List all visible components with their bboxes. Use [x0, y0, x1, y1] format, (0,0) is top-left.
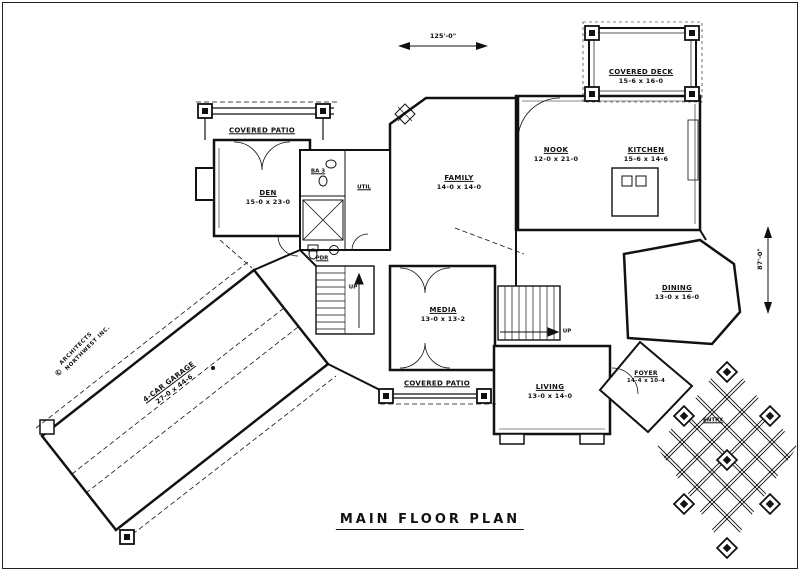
- room-size: 12-0 x 21-0: [534, 155, 579, 164]
- room-size: 14-0 x 14-0: [437, 183, 482, 192]
- room-label-den: DEN 15-0 x 23-0: [246, 189, 291, 207]
- room-label-covered-patio-upper: COVERED PATIO: [229, 126, 295, 135]
- stair-up-label-right: UP: [563, 328, 572, 335]
- stair-up-label-left: UP: [349, 284, 358, 291]
- room-size: 13-0 x 13-2: [421, 315, 466, 324]
- room-label-foyer: FOYER 14-4 x 10-4: [627, 370, 665, 386]
- room-size: 15-0 x 23-0: [246, 198, 291, 207]
- room-name: LIVING: [528, 383, 573, 392]
- dim-overall-width: 125'-0": [430, 32, 456, 40]
- room-name: FOYER: [627, 370, 665, 378]
- room-name: FAMILY: [437, 174, 482, 183]
- dim-overall-depth: 87'-0": [756, 248, 764, 270]
- room-label-dining: DINING 13-0 x 16-0: [655, 284, 700, 302]
- room-name: DEN: [246, 189, 291, 198]
- room-label-powder: PDR: [316, 255, 329, 262]
- room-size: 14-4 x 10-4: [627, 378, 665, 385]
- exterior-walls: [40, 28, 740, 530]
- room-label-living: LIVING 13-0 x 14-0: [528, 383, 573, 401]
- room-size: 13-0 x 14-0: [528, 392, 573, 401]
- room-label-media: MEDIA 13-0 x 13-2: [421, 306, 466, 324]
- room-size: 13-0 x 16-0: [655, 293, 700, 302]
- room-size: 15-6 x 16-0: [609, 77, 673, 86]
- trellis-posts: [674, 362, 780, 558]
- room-label-kitchen: KITCHEN 15-6 x 14-6: [624, 146, 669, 164]
- room-label-entry: ENTRY: [703, 417, 723, 424]
- plan-title: MAIN FLOOR PLAN: [336, 512, 524, 530]
- room-name: MEDIA: [421, 306, 466, 315]
- floor-plan-sheet: 125'-0" 87'-0" COVERED PATIO COVERED DEC…: [0, 0, 800, 571]
- room-label-bath3: BA 3: [311, 168, 325, 175]
- room-name: COVERED DECK: [609, 68, 673, 77]
- room-label-covered-deck: COVERED DECK 15-6 x 16-0: [609, 68, 673, 86]
- room-label-covered-patio-lower: COVERED PATIO: [404, 379, 470, 388]
- room-size: 15-6 x 14-6: [624, 155, 669, 164]
- room-name: NOOK: [534, 146, 579, 155]
- room-label-nook: NOOK 12-0 x 21-0: [534, 146, 579, 164]
- room-label-utility: UTIL: [357, 184, 371, 191]
- room-name: DINING: [655, 284, 700, 293]
- room-label-family: FAMILY 14-0 x 14-0: [437, 174, 482, 192]
- room-name: KITCHEN: [624, 146, 669, 155]
